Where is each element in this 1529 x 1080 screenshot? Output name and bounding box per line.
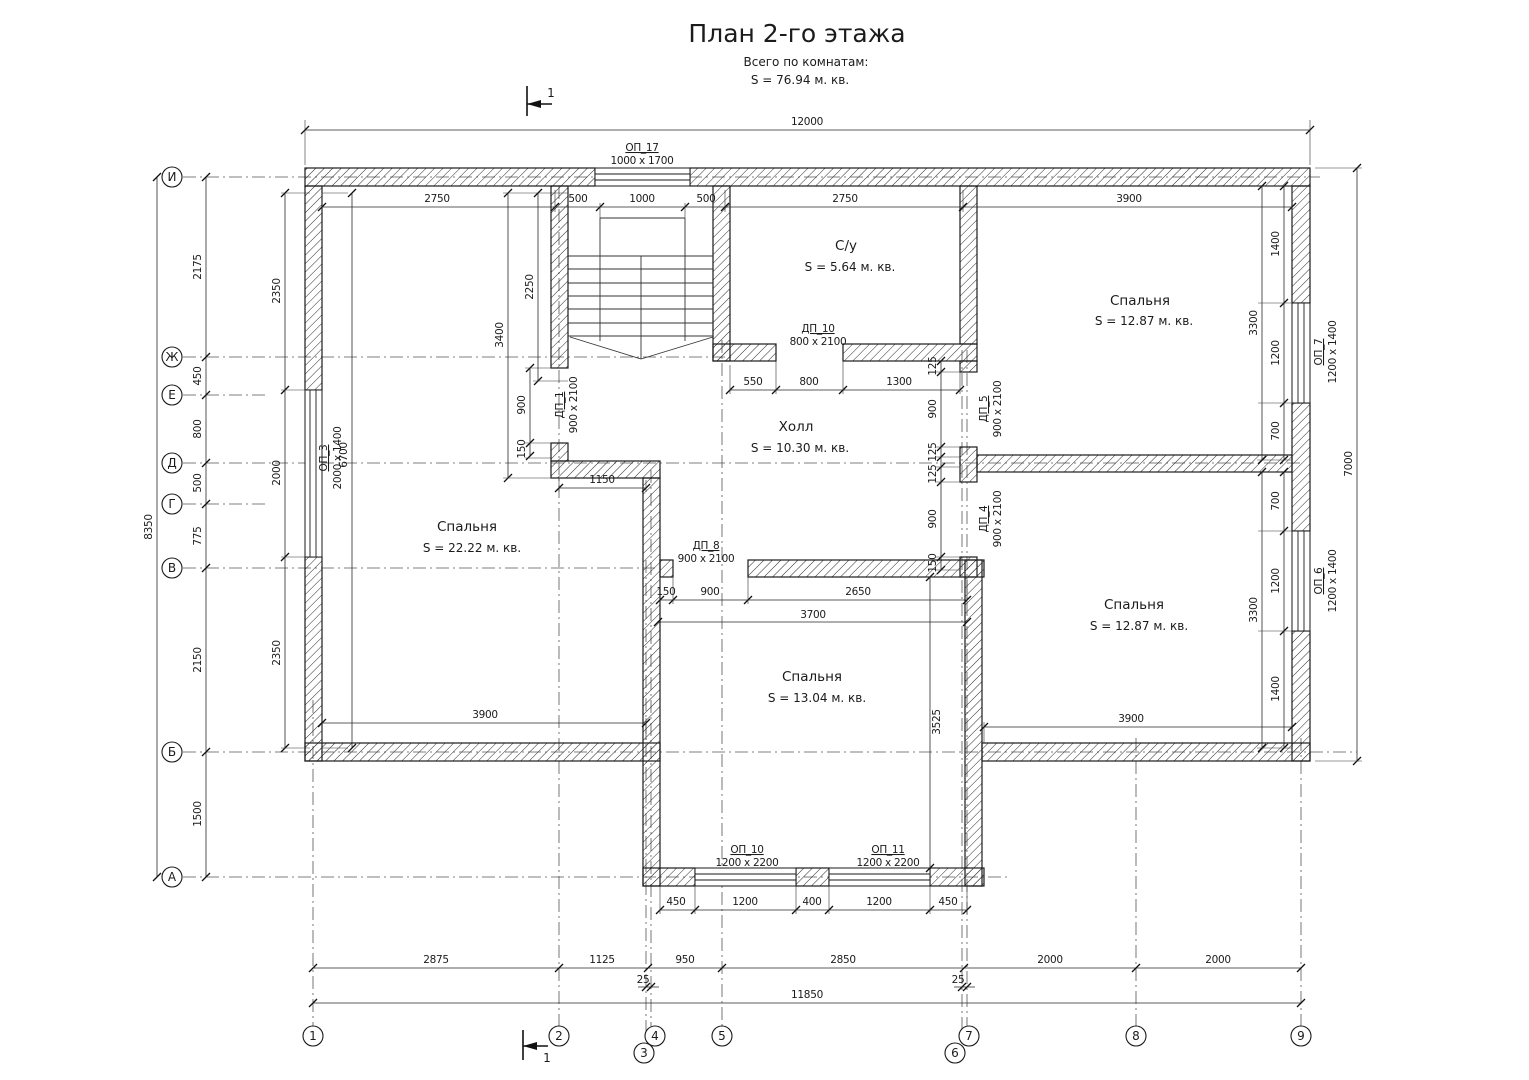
axis-lines xyxy=(183,177,1357,1043)
dim-label: 1200 xyxy=(1270,568,1282,594)
section-mark-bottom: 1 xyxy=(523,1030,551,1065)
room-name: Спальня xyxy=(437,519,497,535)
row-axis-markers: И Ж Е Д Г В Б А xyxy=(162,167,182,887)
dim-label: 1150 xyxy=(589,474,615,486)
wall-hall-right-stub-1 xyxy=(960,361,977,372)
dim-label: 3300 xyxy=(1248,310,1260,336)
wall-left-lower xyxy=(305,557,322,761)
axis-marker: Д xyxy=(162,453,182,473)
dim-label: 2250 xyxy=(524,274,536,300)
wall-right-2 xyxy=(1292,403,1310,531)
dim-label: 8350 xyxy=(143,514,155,540)
wall-between-right-bedrooms xyxy=(977,455,1292,472)
wall-hall-right-stub-2 xyxy=(960,447,977,482)
dim-label: 450 xyxy=(938,896,957,908)
svg-text:2: 2 xyxy=(555,1029,563,1043)
opening-name: ОП_7 xyxy=(1313,339,1325,366)
opening-size: 1200 х 2200 xyxy=(715,857,778,869)
axis-marker: 6 xyxy=(945,1043,965,1063)
room-area: S = 22.22 м. кв. xyxy=(423,541,521,555)
dim-label: 7000 xyxy=(1343,451,1355,477)
dim-label: 900 xyxy=(516,395,528,414)
wall-bay-bottom-2 xyxy=(796,868,829,886)
opening-name: ДП_4 xyxy=(978,505,990,532)
axis-marker: 1 xyxy=(303,1026,323,1046)
wall-bath-right xyxy=(960,186,977,344)
dim-label: 500 xyxy=(192,473,204,492)
room-name: Спальня xyxy=(782,669,842,685)
dim-label: 3300 xyxy=(1248,597,1260,623)
dim-label: 11850 xyxy=(791,989,823,1001)
wall-right-3 xyxy=(1292,631,1310,761)
wall-stair-left-upper xyxy=(551,186,568,368)
dim-label: 450 xyxy=(192,366,204,385)
dim-label: 2750 xyxy=(832,193,858,205)
svg-text:7: 7 xyxy=(965,1029,973,1043)
dim-label: 700 xyxy=(1270,421,1282,440)
svg-text:Б: Б xyxy=(168,745,176,759)
window-op11 xyxy=(829,868,930,886)
svg-text:Г: Г xyxy=(168,497,175,511)
axis-marker: 4 xyxy=(645,1026,665,1046)
svg-text:Д: Д xyxy=(167,456,176,470)
dim-label: 1400 xyxy=(1270,676,1282,702)
axis-marker: Ж xyxy=(162,347,182,367)
dim-label: 3900 xyxy=(1118,713,1144,725)
section-mark-top: 1 xyxy=(527,86,555,116)
svg-text:1: 1 xyxy=(309,1029,317,1043)
dim-label: 2850 xyxy=(830,954,856,966)
wall-hall-bottom-2 xyxy=(748,560,984,577)
dim-label: 150 xyxy=(516,439,528,458)
wall-stair-right xyxy=(713,186,730,361)
opening-name: ОП_11 xyxy=(871,844,904,856)
title-block: План 2-го этажа Всего по комнатам: S = 7… xyxy=(688,19,905,87)
opening-size: 1200 х 1400 xyxy=(1327,320,1339,383)
axis-marker: И xyxy=(162,167,182,187)
svg-text:Ж: Ж xyxy=(166,350,179,364)
wall-bath-bottom-2 xyxy=(843,344,977,361)
axis-marker: А xyxy=(162,867,182,887)
opening-name: ОП_10 xyxy=(730,844,763,856)
wall-top-right xyxy=(690,168,1310,186)
dim-label: 2350 xyxy=(271,640,283,666)
svg-text:9: 9 xyxy=(1297,1029,1305,1043)
svg-text:В: В xyxy=(168,561,176,575)
window-op7 xyxy=(1292,303,1310,403)
dim-label: 2175 xyxy=(192,254,204,280)
dim-label: 900 xyxy=(700,586,719,598)
wall-top-left xyxy=(305,168,595,186)
window-op3 xyxy=(305,390,322,557)
opening-name: ОП_3 xyxy=(318,445,330,472)
opening-name: ДП_5 xyxy=(978,396,990,423)
dim-label: 1500 xyxy=(192,801,204,827)
dim-label: 900 xyxy=(927,399,939,418)
dim-label: 700 xyxy=(1270,491,1282,510)
axis-marker: В xyxy=(162,558,182,578)
opening-size: 900 х 2100 xyxy=(678,553,735,565)
svg-text:3: 3 xyxy=(640,1046,648,1060)
wall-bay-right xyxy=(965,560,982,886)
dim-label: 3900 xyxy=(472,709,498,721)
dim-label: 2150 xyxy=(192,647,204,673)
opening-size: 2000 х 1400 xyxy=(332,426,344,489)
dim-label: 550 xyxy=(743,376,762,388)
dim-label: 2000 xyxy=(1205,954,1231,966)
dim-label: 400 xyxy=(802,896,821,908)
opening-size: 900 х 2100 xyxy=(992,491,1004,548)
dim-label: 12000 xyxy=(791,116,823,128)
dim-label: 3900 xyxy=(1116,193,1142,205)
room-name: Спальня xyxy=(1104,597,1164,613)
dim-label: 800 xyxy=(799,376,818,388)
dim-label: 1125 xyxy=(589,954,615,966)
opening-size: 900 х 2100 xyxy=(568,377,580,434)
wall-left-upper xyxy=(305,186,322,390)
room-name: С/у xyxy=(835,238,857,254)
dim-label: 3400 xyxy=(494,322,506,348)
column-axis-markers: 1 2 3 4 5 6 7 8 9 xyxy=(303,1026,1311,1063)
svg-text:5: 5 xyxy=(718,1029,726,1043)
dim-label: 1400 xyxy=(1270,231,1282,257)
wall-bottom-right xyxy=(982,743,1310,761)
dim-label: 150 xyxy=(656,586,675,598)
drawing-sheet: План 2-го этажа Всего по комнатам: S = 7… xyxy=(0,0,1529,1080)
opening-name: ДП_10 xyxy=(801,323,834,335)
dim-label: 1300 xyxy=(886,376,912,388)
axis-marker: Б xyxy=(162,742,182,762)
room-area: S = 10.30 м. кв. xyxy=(751,441,849,455)
dim-label: 2650 xyxy=(845,586,871,598)
svg-text:4: 4 xyxy=(651,1029,659,1043)
dim-label: 950 xyxy=(675,954,694,966)
page-title: План 2-го этажа xyxy=(688,19,905,48)
wall-bay-bottom-1 xyxy=(643,868,695,886)
dim-label: 2750 xyxy=(424,193,450,205)
dim-label: 800 xyxy=(192,419,204,438)
window-op17 xyxy=(595,168,690,186)
opening-name: ДП_1 xyxy=(554,392,566,419)
opening-name: ДП_8 xyxy=(693,540,720,552)
opening-size: 800 х 2100 xyxy=(790,336,847,348)
dim-label: 1000 xyxy=(629,193,655,205)
axis-marker: Е xyxy=(162,385,182,405)
room-name: Холл xyxy=(779,419,814,435)
wall-bath-bottom-1 xyxy=(713,344,776,361)
dim-label: 3700 xyxy=(800,609,826,621)
room-area: S = 12.87 м. кв. xyxy=(1095,314,1193,328)
opening-name: ОП_17 xyxy=(625,142,658,154)
dim-label: 3525 xyxy=(931,709,943,735)
opening-size: 1000 х 1700 xyxy=(610,155,673,167)
axis-marker: 3 xyxy=(634,1043,654,1063)
dim-label: 500 xyxy=(696,193,715,205)
wall-hall-bottom-1 xyxy=(660,560,673,577)
rooms-total-caption: Всего по комнатам: xyxy=(744,55,869,69)
wall-bottom-left xyxy=(305,743,660,761)
floor-plan-drawing: План 2-го этажа Всего по комнатам: S = 7… xyxy=(0,0,1529,1080)
svg-text:И: И xyxy=(168,170,177,184)
svg-text:Е: Е xyxy=(168,388,176,402)
opening-name: ОП_6 xyxy=(1313,567,1325,595)
staircase xyxy=(568,218,713,359)
dim-label: 25 xyxy=(952,974,965,986)
window-op10 xyxy=(695,868,796,886)
axis-marker: 7 xyxy=(959,1026,979,1046)
opening-size: 1200 х 1400 xyxy=(1327,549,1339,612)
section-label: 1 xyxy=(543,1051,551,1065)
dim-label: 1200 xyxy=(732,896,758,908)
room-area: S = 12.87 м. кв. xyxy=(1090,619,1188,633)
axis-marker: 2 xyxy=(549,1026,569,1046)
dim-label: 125 xyxy=(927,442,939,461)
room-name: Спальня xyxy=(1110,293,1170,309)
dim-label: 25 xyxy=(637,974,650,986)
dim-label: 2000 xyxy=(271,460,283,486)
axis-marker: 8 xyxy=(1126,1026,1146,1046)
svg-text:6: 6 xyxy=(951,1046,959,1060)
window-op6 xyxy=(1292,531,1310,631)
axis-marker: 9 xyxy=(1291,1026,1311,1046)
dim-label: 2350 xyxy=(271,278,283,304)
dim-label: 2875 xyxy=(423,954,449,966)
dim-label: 900 xyxy=(927,509,939,528)
rooms-total-area: S = 76.94 м. кв. xyxy=(751,73,849,87)
dim-label: 1200 xyxy=(1270,340,1282,366)
axis-marker: Г xyxy=(162,494,182,514)
dim-label: 125 xyxy=(927,356,939,375)
room-area: S = 5.64 м. кв. xyxy=(805,260,896,274)
room-area: S = 13.04 м. кв. xyxy=(768,691,866,705)
section-label: 1 xyxy=(547,86,555,100)
svg-text:А: А xyxy=(168,870,177,884)
svg-text:8: 8 xyxy=(1132,1029,1140,1043)
axis-marker: 5 xyxy=(712,1026,732,1046)
opening-size: 900 х 2100 xyxy=(992,381,1004,438)
dim-label: 2000 xyxy=(1037,954,1063,966)
dim-label: 150 xyxy=(927,553,939,572)
dim-label: 775 xyxy=(192,526,204,545)
dim-label: 450 xyxy=(666,896,685,908)
dim-label: 500 xyxy=(568,193,587,205)
opening-size: 1200 х 2200 xyxy=(856,857,919,869)
wall-bay-left xyxy=(643,478,660,886)
wall-stair-left-stub xyxy=(551,443,568,461)
dim-label: 1200 xyxy=(866,896,892,908)
dim-label: 125 xyxy=(927,464,939,483)
